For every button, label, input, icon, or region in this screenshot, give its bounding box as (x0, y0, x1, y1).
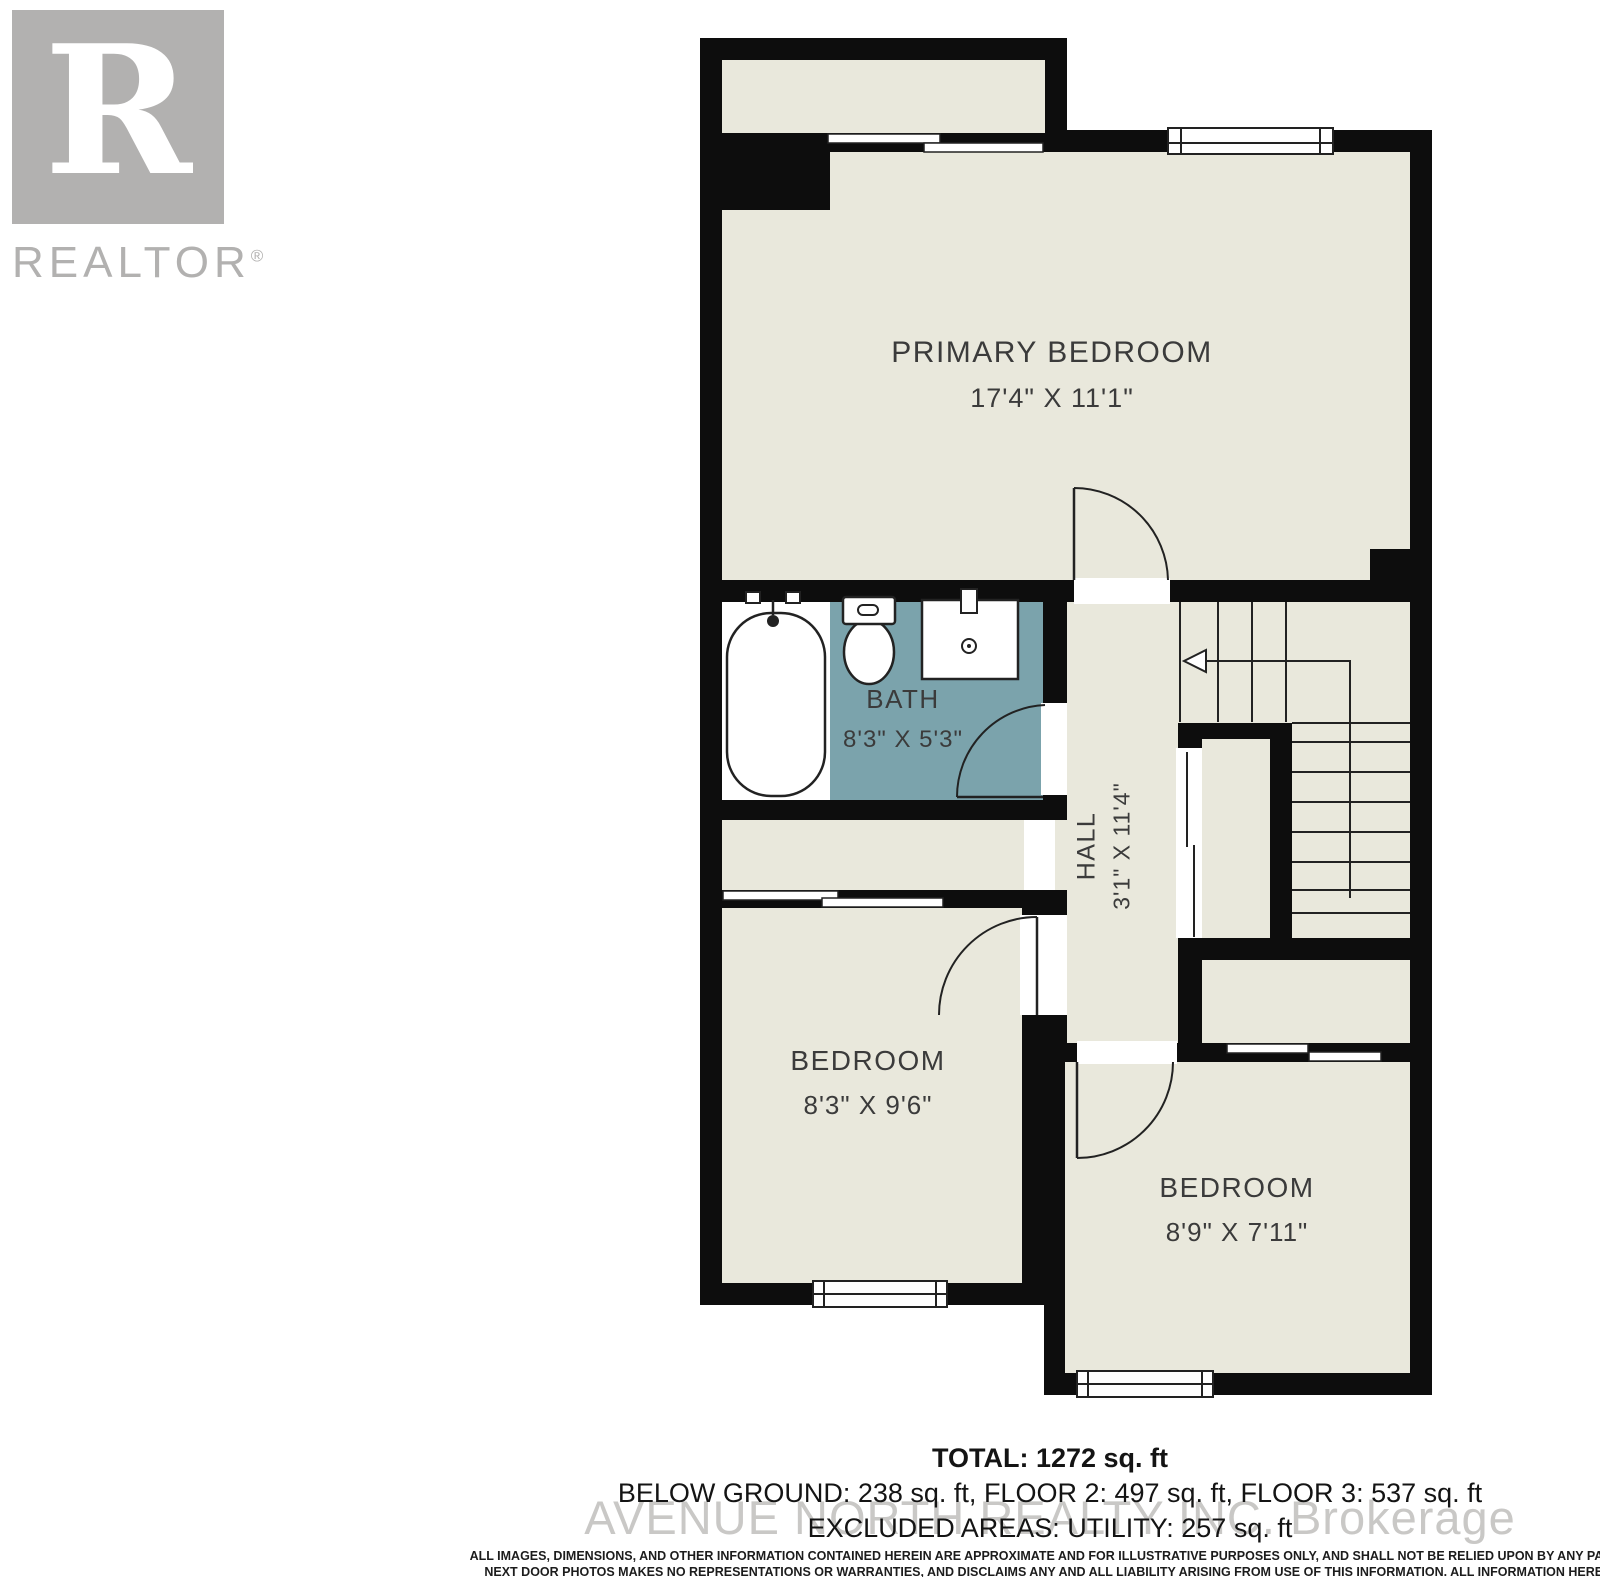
wall (700, 38, 1067, 60)
disclaimer: ALL IMAGES, DIMENSIONS, AND OTHER INFORM… (300, 1549, 1600, 1577)
room-dimensions: 17'4" X 11'1" (891, 383, 1212, 414)
tub-handle (746, 592, 760, 603)
label-primary-bedroom: PRIMARY BEDROOM 17'4" X 11'1" (891, 336, 1212, 414)
room-dimensions: 8'3" X 5'3" (843, 726, 963, 754)
wall (700, 800, 1067, 820)
tub-spout-drop (767, 615, 779, 627)
room-name: BATH (843, 684, 963, 715)
bypass-door-panel (1227, 1044, 1308, 1053)
label-bath: BATH 8'3" X 5'3" (843, 684, 963, 754)
bypass-door-panel (1309, 1052, 1381, 1061)
closet-left-floor (712, 818, 1024, 892)
sink (922, 589, 1018, 679)
floor-plan-drawing (0, 0, 1600, 1577)
wall (1044, 1043, 1065, 1395)
wall (1178, 938, 1412, 960)
landing-floor (1190, 958, 1412, 1045)
wall (700, 133, 830, 210)
bypass-door-panel (828, 134, 940, 143)
window (1168, 128, 1333, 154)
label-bedroom-right: BEDROOM 8'9" X 7'11" (1159, 1172, 1314, 1248)
wall (1370, 549, 1412, 582)
sink-drain-dot (967, 644, 971, 648)
floor-areas: BELOW GROUND: 238 sq. ft, FLOOR 2: 497 s… (400, 1478, 1600, 1509)
wall (700, 580, 1432, 602)
closet-top-floor (712, 60, 1045, 135)
wall (1410, 130, 1432, 1395)
disclaimer-line: ALL IMAGES, DIMENSIONS, AND OTHER INFORM… (300, 1549, 1600, 1565)
area-summary: TOTAL: 1272 sq. ft BELOW GROUND: 238 sq.… (400, 1443, 1600, 1544)
toilet-button (858, 605, 878, 615)
label-hall: HALL 3'1" X 11'4" (1073, 782, 1136, 909)
window (813, 1281, 947, 1307)
room-dimensions: 8'9" X 7'11" (1159, 1217, 1314, 1248)
floor-plan-page: R REALTOR® (0, 0, 1600, 1577)
room-dimensions: 8'3" X 9'6" (790, 1090, 945, 1121)
room-dimensions: 3'1" X 11'4" (1109, 782, 1136, 909)
room-name: HALL (1073, 782, 1102, 909)
room-name: BEDROOM (790, 1045, 945, 1077)
bypass-door-panel (822, 898, 943, 907)
label-bedroom-left: BEDROOM 8'3" X 9'6" (790, 1045, 945, 1121)
toilet (843, 597, 895, 684)
total-area: TOTAL: 1272 sq. ft (400, 1443, 1600, 1474)
wall (700, 38, 722, 1305)
disclaimer-line: NEXT DOOR PHOTOS MAKES NO REPRESENTATION… (300, 1565, 1600, 1577)
closet-sliding-door (1176, 748, 1202, 938)
window (1077, 1371, 1213, 1397)
room-name: BEDROOM (1159, 1172, 1314, 1204)
excluded-areas: EXCLUDED AREAS: UTILITY: 257 sq. ft (400, 1513, 1600, 1544)
tub-handle (786, 592, 800, 603)
bypass-door-panel (924, 143, 1043, 152)
wall (1270, 723, 1292, 960)
sink-faucet (961, 589, 977, 613)
room-name: PRIMARY BEDROOM (891, 336, 1212, 370)
bypass-door-panel (723, 891, 838, 900)
bathtub (727, 592, 825, 796)
